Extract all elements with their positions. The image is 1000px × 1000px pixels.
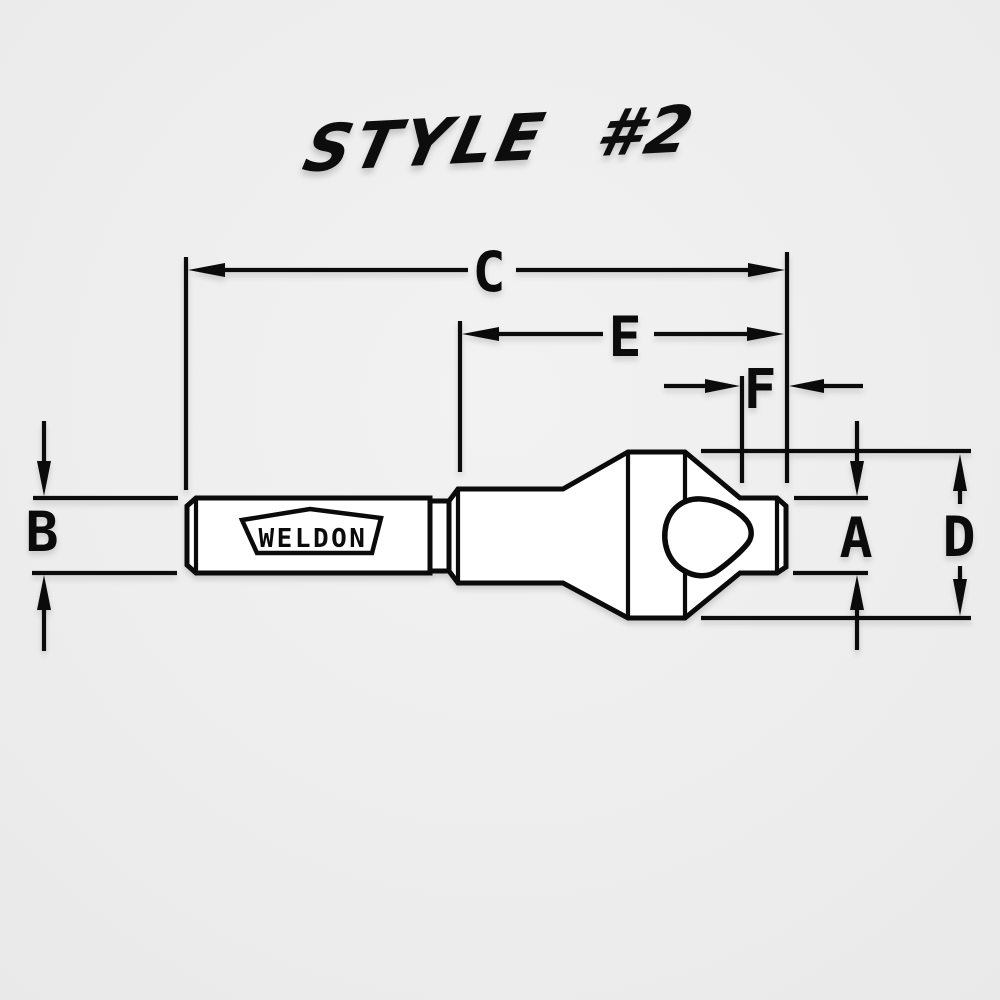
dim-e-label: E <box>608 305 641 369</box>
dim-f-label: F <box>743 357 776 421</box>
dimension-B: B <box>25 421 178 651</box>
drawing-canvas: STYLE #2 WELDON <box>0 0 1000 1000</box>
dimension-C: C <box>186 240 787 490</box>
countersink-technical-drawing: WELDON C E F <box>0 0 1000 1000</box>
dim-b-label: B <box>25 500 58 564</box>
dim-d-arrow-bottom <box>953 579 967 616</box>
dim-e-arrow-left <box>462 327 499 341</box>
dim-b-arrow-top <box>37 461 51 496</box>
neck-outline <box>430 501 449 571</box>
dim-d-arrow-top <box>953 454 967 491</box>
dim-f-arrow-left <box>705 379 740 393</box>
tool-outline: WELDON <box>187 452 786 618</box>
dim-f-arrow-right <box>789 379 824 393</box>
dim-e-arrow-right <box>747 327 784 341</box>
dim-a-label: A <box>839 506 872 570</box>
dimension-A: A <box>793 421 873 650</box>
dim-c-label: C <box>472 240 505 304</box>
dim-c-arrow-right <box>748 263 785 277</box>
dim-a-arrow-top <box>850 461 864 496</box>
brand-label: WELDON <box>259 524 368 554</box>
dim-a-arrow-bottom <box>850 575 864 610</box>
dim-b-arrow-bottom <box>37 575 51 610</box>
dimension-E: E <box>460 305 784 472</box>
dim-c-arrow-left <box>188 263 225 277</box>
dim-d-label: D <box>942 505 975 569</box>
